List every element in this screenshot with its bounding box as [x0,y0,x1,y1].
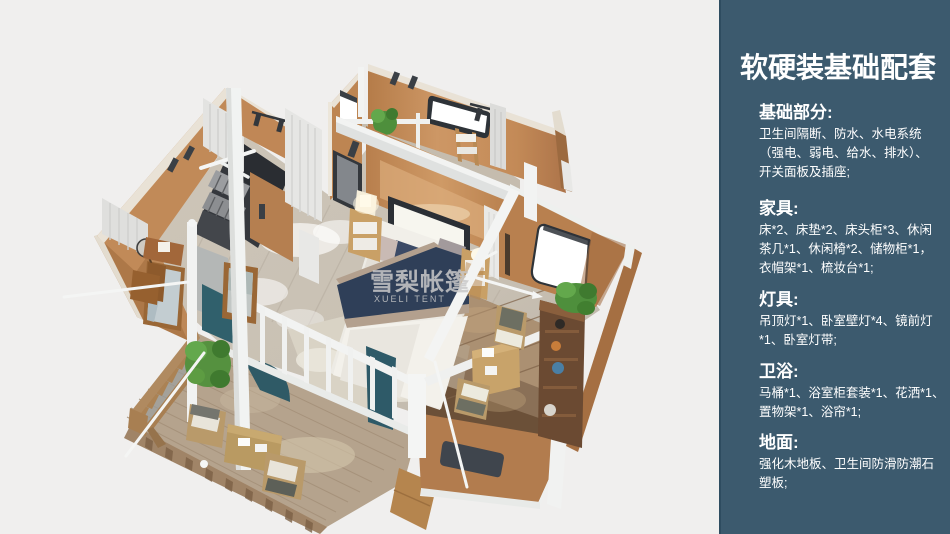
svg-text:雪梨帐篷: 雪梨帐篷 [370,268,470,296]
svg-text:XUELI TENT: XUELI TENT [374,294,446,304]
